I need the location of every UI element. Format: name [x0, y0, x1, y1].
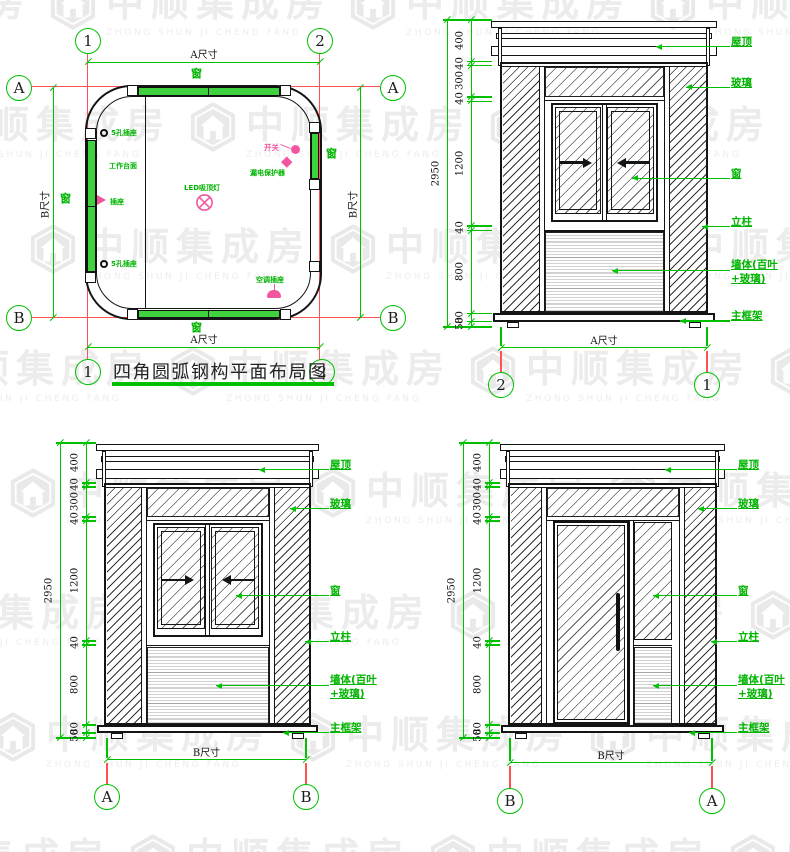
- leader-arrow: [665, 467, 671, 473]
- dim-value: 50: [473, 715, 484, 755]
- roof-post: [506, 451, 510, 487]
- roof-bar: [500, 444, 725, 451]
- leader-line: [653, 685, 737, 686]
- roof-label: 屋顶: [738, 457, 759, 472]
- dim-value: 1200: [473, 561, 484, 601]
- leader-line: [653, 595, 737, 596]
- side-glass-panel: [685, 488, 715, 723]
- dim-extension-line: [711, 738, 712, 761]
- side-glass-panel: [511, 488, 541, 723]
- drawing-canvas: 中顺集成房ZHONG SHUN JI CHENG FANG中顺集成房ZHONG …: [0, 0, 790, 852]
- frame-label: 主框架: [738, 720, 770, 735]
- dim-total-line: [463, 443, 464, 738]
- dim-value: 800: [473, 665, 484, 705]
- leader-line: [689, 732, 737, 733]
- dim-value: 40: [473, 499, 484, 539]
- inner-column: [541, 488, 547, 723]
- dim-extension-line: [509, 738, 510, 761]
- dim-line-bottom: [510, 762, 712, 763]
- leader-arrow: [653, 683, 659, 689]
- leader-arrow: [653, 593, 659, 599]
- grid-bubble-right: A: [699, 788, 725, 814]
- axis-line: [509, 766, 510, 788]
- roof-bar: [500, 469, 725, 479]
- side-elevation-ba-view: 400403004012004080080502950屋顶玻璃窗立柱墙体(百叶+…: [0, 0, 790, 852]
- wall-label: 墙体(百叶+玻璃): [738, 673, 790, 701]
- dim-value: 40: [473, 623, 484, 663]
- leader-arrow: [689, 730, 695, 736]
- foot: [698, 733, 710, 739]
- side-window: [634, 522, 672, 640]
- foot: [515, 733, 527, 739]
- glass-label: 玻璃: [738, 496, 759, 511]
- axis-line: [711, 766, 712, 788]
- transom-glass: [547, 488, 679, 517]
- width-dim-label: B尺寸: [580, 747, 642, 762]
- grid-bubble-left: B: [497, 788, 523, 814]
- roof-bar: [505, 456, 720, 462]
- leader-line: [665, 469, 737, 470]
- inner-column: [679, 488, 685, 723]
- column-label: 立柱: [738, 629, 759, 644]
- window-label: 窗: [738, 583, 749, 598]
- leader-arrow: [698, 506, 704, 512]
- door-handle: [616, 593, 620, 651]
- door-glass: [557, 525, 626, 720]
- dim-total-value: 2950: [447, 570, 458, 610]
- leader-arrow: [711, 639, 717, 645]
